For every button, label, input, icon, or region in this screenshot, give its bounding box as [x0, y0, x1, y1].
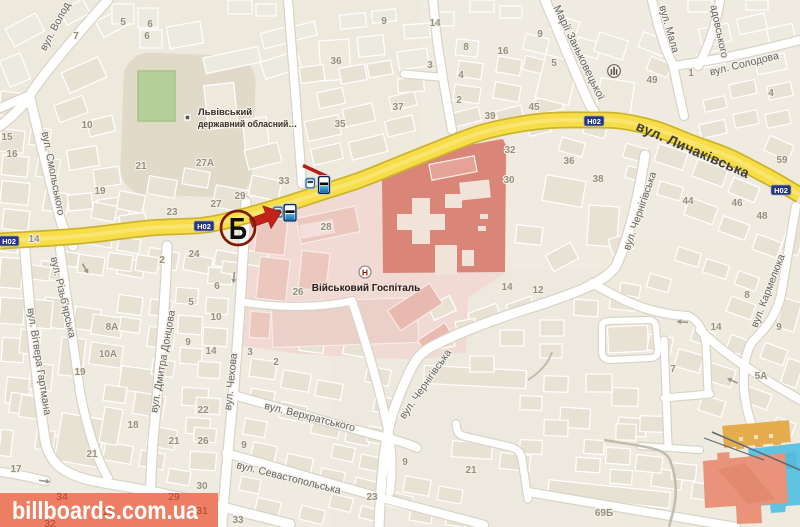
svg-text:2: 2	[159, 255, 165, 266]
svg-text:24: 24	[188, 249, 200, 260]
svg-text:38: 38	[592, 174, 604, 185]
svg-text:16: 16	[497, 46, 509, 57]
svg-text:9: 9	[537, 29, 543, 40]
svg-text:14: 14	[501, 282, 513, 293]
svg-text:5А: 5А	[755, 371, 768, 382]
svg-text:36: 36	[563, 156, 575, 167]
svg-text:39: 39	[484, 111, 496, 122]
svg-text:30: 30	[503, 175, 515, 186]
svg-text:4: 4	[768, 88, 774, 99]
svg-text:6: 6	[144, 31, 150, 42]
svg-text:2: 2	[456, 95, 462, 106]
svg-text:7: 7	[73, 31, 79, 42]
svg-text:33: 33	[278, 176, 290, 187]
svg-text:28: 28	[320, 222, 332, 233]
svg-text:23: 23	[366, 492, 378, 503]
svg-text:46: 46	[731, 198, 743, 209]
svg-text:H02: H02	[774, 186, 788, 195]
svg-text:Львівський: Львівський	[198, 107, 252, 118]
svg-text:1: 1	[688, 68, 694, 79]
svg-text:4: 4	[458, 70, 464, 81]
svg-text:10: 10	[210, 312, 222, 323]
svg-text:35: 35	[334, 119, 346, 130]
svg-text:9: 9	[185, 337, 191, 348]
svg-text:19: 19	[94, 186, 106, 197]
svg-text:18: 18	[127, 420, 139, 431]
svg-text:27А: 27А	[196, 158, 214, 169]
svg-text:48: 48	[756, 211, 768, 222]
svg-text:17: 17	[10, 464, 22, 475]
svg-text:Б: Б	[229, 212, 247, 247]
svg-text:23: 23	[166, 207, 178, 218]
svg-text:14: 14	[205, 346, 217, 357]
svg-text:37: 37	[392, 102, 404, 113]
svg-text:33: 33	[232, 515, 244, 526]
svg-text:H02: H02	[2, 237, 16, 246]
svg-text:21: 21	[86, 449, 98, 460]
svg-text:14: 14	[429, 18, 441, 29]
svg-text:Н: Н	[362, 268, 368, 278]
svg-text:9: 9	[776, 322, 782, 333]
svg-text:H02: H02	[197, 222, 211, 231]
svg-text:14: 14	[710, 322, 722, 333]
svg-text:5: 5	[188, 297, 194, 308]
svg-text:27: 27	[210, 199, 222, 210]
svg-text:9: 9	[241, 440, 247, 451]
svg-text:45: 45	[528, 102, 540, 113]
svg-text:8: 8	[744, 290, 750, 301]
svg-text:7: 7	[670, 364, 676, 375]
svg-text:5: 5	[551, 58, 557, 69]
svg-text:21: 21	[135, 161, 147, 172]
svg-text:6: 6	[214, 281, 220, 292]
svg-text:6: 6	[147, 19, 153, 30]
svg-text:10: 10	[81, 120, 93, 131]
svg-text:3: 3	[247, 347, 253, 358]
svg-text:8А: 8А	[106, 322, 119, 333]
svg-text:26: 26	[292, 287, 304, 298]
svg-text:21: 21	[168, 436, 180, 447]
svg-text:22: 22	[197, 405, 209, 416]
svg-text:3: 3	[427, 60, 433, 71]
svg-text:5: 5	[120, 17, 126, 28]
svg-text:billboards.com.ua: billboards.com.ua	[12, 497, 199, 525]
svg-text:29: 29	[234, 191, 246, 202]
svg-text:26: 26	[197, 436, 209, 447]
svg-text:12: 12	[532, 285, 544, 296]
svg-text:19: 19	[74, 367, 86, 378]
svg-text:30: 30	[196, 481, 208, 492]
svg-text:69Б: 69Б	[595, 508, 613, 519]
svg-text:49: 49	[646, 75, 658, 86]
svg-text:9: 9	[381, 16, 387, 27]
svg-text:15: 15	[1, 132, 13, 143]
svg-text:10А: 10А	[99, 349, 117, 360]
svg-text:державний обласний…: державний обласний…	[198, 119, 297, 130]
svg-text:36: 36	[330, 56, 342, 67]
svg-text:14: 14	[28, 234, 40, 245]
svg-text:8: 8	[463, 42, 469, 53]
svg-text:16: 16	[6, 149, 18, 160]
svg-text:32: 32	[504, 145, 516, 156]
svg-text:Військовий Госпіталь: Військовий Госпіталь	[312, 283, 421, 294]
svg-text:9: 9	[402, 457, 408, 468]
svg-text:2: 2	[273, 357, 279, 368]
svg-text:44: 44	[682, 196, 694, 207]
svg-text:H02: H02	[587, 117, 601, 126]
svg-text:59: 59	[776, 155, 788, 166]
svg-text:21: 21	[465, 465, 477, 476]
